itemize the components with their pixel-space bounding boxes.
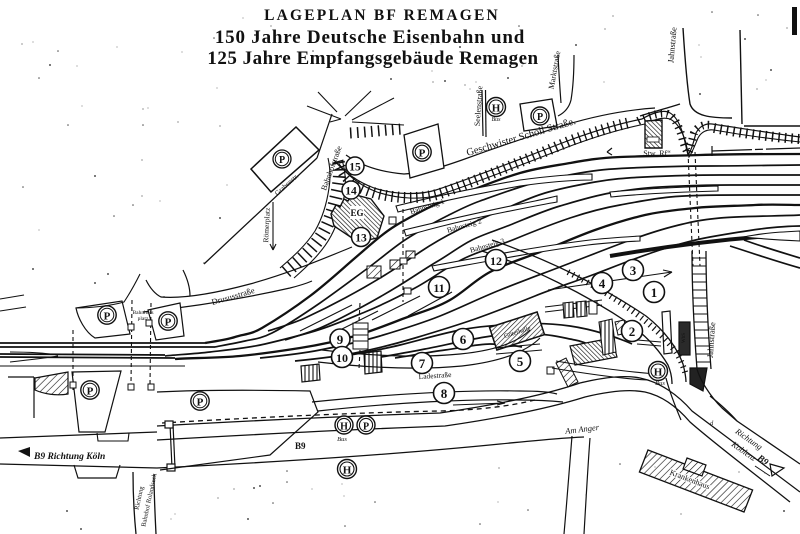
svg-text:15: 15: [349, 162, 361, 174]
svg-text:EG: EG: [350, 208, 363, 218]
svg-text:12: 12: [490, 254, 502, 268]
svg-text:P: P: [279, 155, 285, 166]
svg-text:P: P: [87, 386, 94, 398]
svg-text:7: 7: [419, 356, 426, 371]
svg-text:3: 3: [630, 263, 637, 278]
svg-text:Bus: Bus: [492, 117, 502, 123]
svg-text:2: 2: [629, 324, 636, 339]
svg-text:LAGEPLAN BF REMAGEN: LAGEPLAN BF REMAGEN: [264, 7, 500, 24]
svg-text:8: 8: [441, 386, 448, 401]
svg-text:P: P: [537, 112, 543, 123]
svg-text:11: 11: [433, 281, 444, 295]
svg-text:Römerplatz: Römerplatz: [261, 207, 272, 243]
svg-text:Stw„Rf“: Stw„Rf“: [643, 149, 671, 158]
svg-text:1: 1: [651, 285, 658, 300]
svg-text:9: 9: [337, 332, 344, 347]
svg-text:H: H: [492, 103, 501, 115]
svg-text:10: 10: [336, 351, 348, 365]
svg-text:P: P: [165, 317, 172, 329]
svg-text:5: 5: [517, 354, 524, 369]
svg-text:platz: platz: [138, 316, 149, 322]
svg-text:H: H: [340, 422, 348, 433]
svg-text:P: P: [104, 311, 111, 323]
svg-text:B9 Richtung Köln: B9 Richtung Köln: [33, 452, 105, 462]
svg-text:H: H: [343, 465, 352, 477]
svg-text:Bus: Bus: [337, 436, 347, 443]
svg-text:P: P: [363, 422, 369, 433]
svg-text:Bahnhofs: Bahnhofs: [132, 309, 153, 316]
svg-text:14: 14: [345, 186, 357, 198]
svg-text:125 Jahre Empfangsgebäude Rema: 125 Jahre Empfangsgebäude Remagen: [207, 48, 538, 69]
svg-text:P: P: [197, 397, 204, 409]
svg-text:4: 4: [599, 276, 606, 291]
svg-text:6: 6: [460, 332, 467, 347]
svg-text:13: 13: [355, 233, 367, 245]
svg-text:150 Jahre Deutsche Eisenbahn u: 150 Jahre Deutsche Eisenbahn und: [215, 27, 525, 48]
svg-text:P: P: [419, 148, 426, 160]
svg-text:WhS: WhS: [682, 333, 687, 343]
svg-text:B9: B9: [295, 441, 306, 451]
svg-text:H: H: [654, 367, 663, 379]
